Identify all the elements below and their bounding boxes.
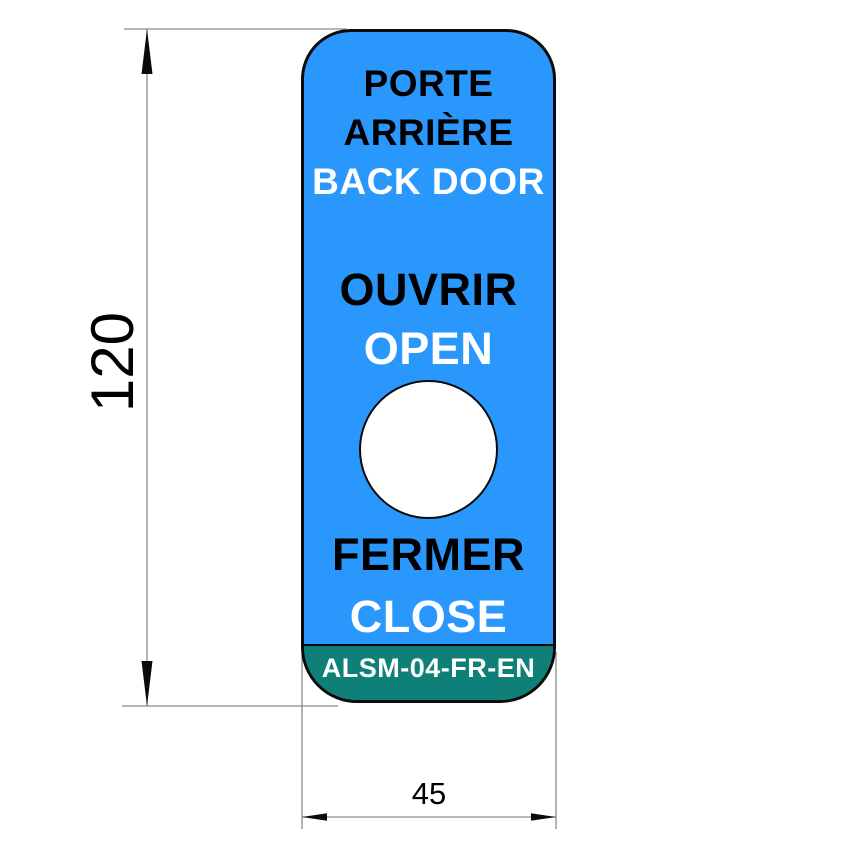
- tag-text-fermer: FERMER: [304, 531, 553, 579]
- dim-arrow-left-icon: [302, 813, 327, 821]
- tag-text-porte: PORTE: [304, 63, 553, 105]
- tag-text-back-door: BACK DOOR: [304, 161, 553, 203]
- drawing-canvas: 120 45 PORTE ARRIÈRE BACK DOOR OUVRIR OP…: [0, 0, 850, 850]
- dim-arrow-right-icon: [531, 813, 556, 821]
- tag-text-close: CLOSE: [304, 593, 553, 641]
- tag-text-open: OPEN: [304, 325, 553, 373]
- dim-arrow-down-icon: [142, 661, 153, 706]
- part-number-band: ALSM-04-FR-EN: [304, 644, 553, 700]
- tag-text-arriere: ARRIÈRE: [304, 112, 553, 154]
- part-number-text: ALSM-04-FR-EN: [322, 653, 536, 684]
- hanger-hole: [359, 380, 498, 519]
- door-tag-label: PORTE ARRIÈRE BACK DOOR OUVRIR OPEN FERM…: [301, 29, 556, 703]
- height-dimension-value: 120: [81, 262, 145, 462]
- tag-text-ouvrir: OUVRIR: [304, 266, 553, 314]
- width-dimension-value: 45: [379, 778, 479, 810]
- dim-arrow-up-icon: [142, 29, 153, 74]
